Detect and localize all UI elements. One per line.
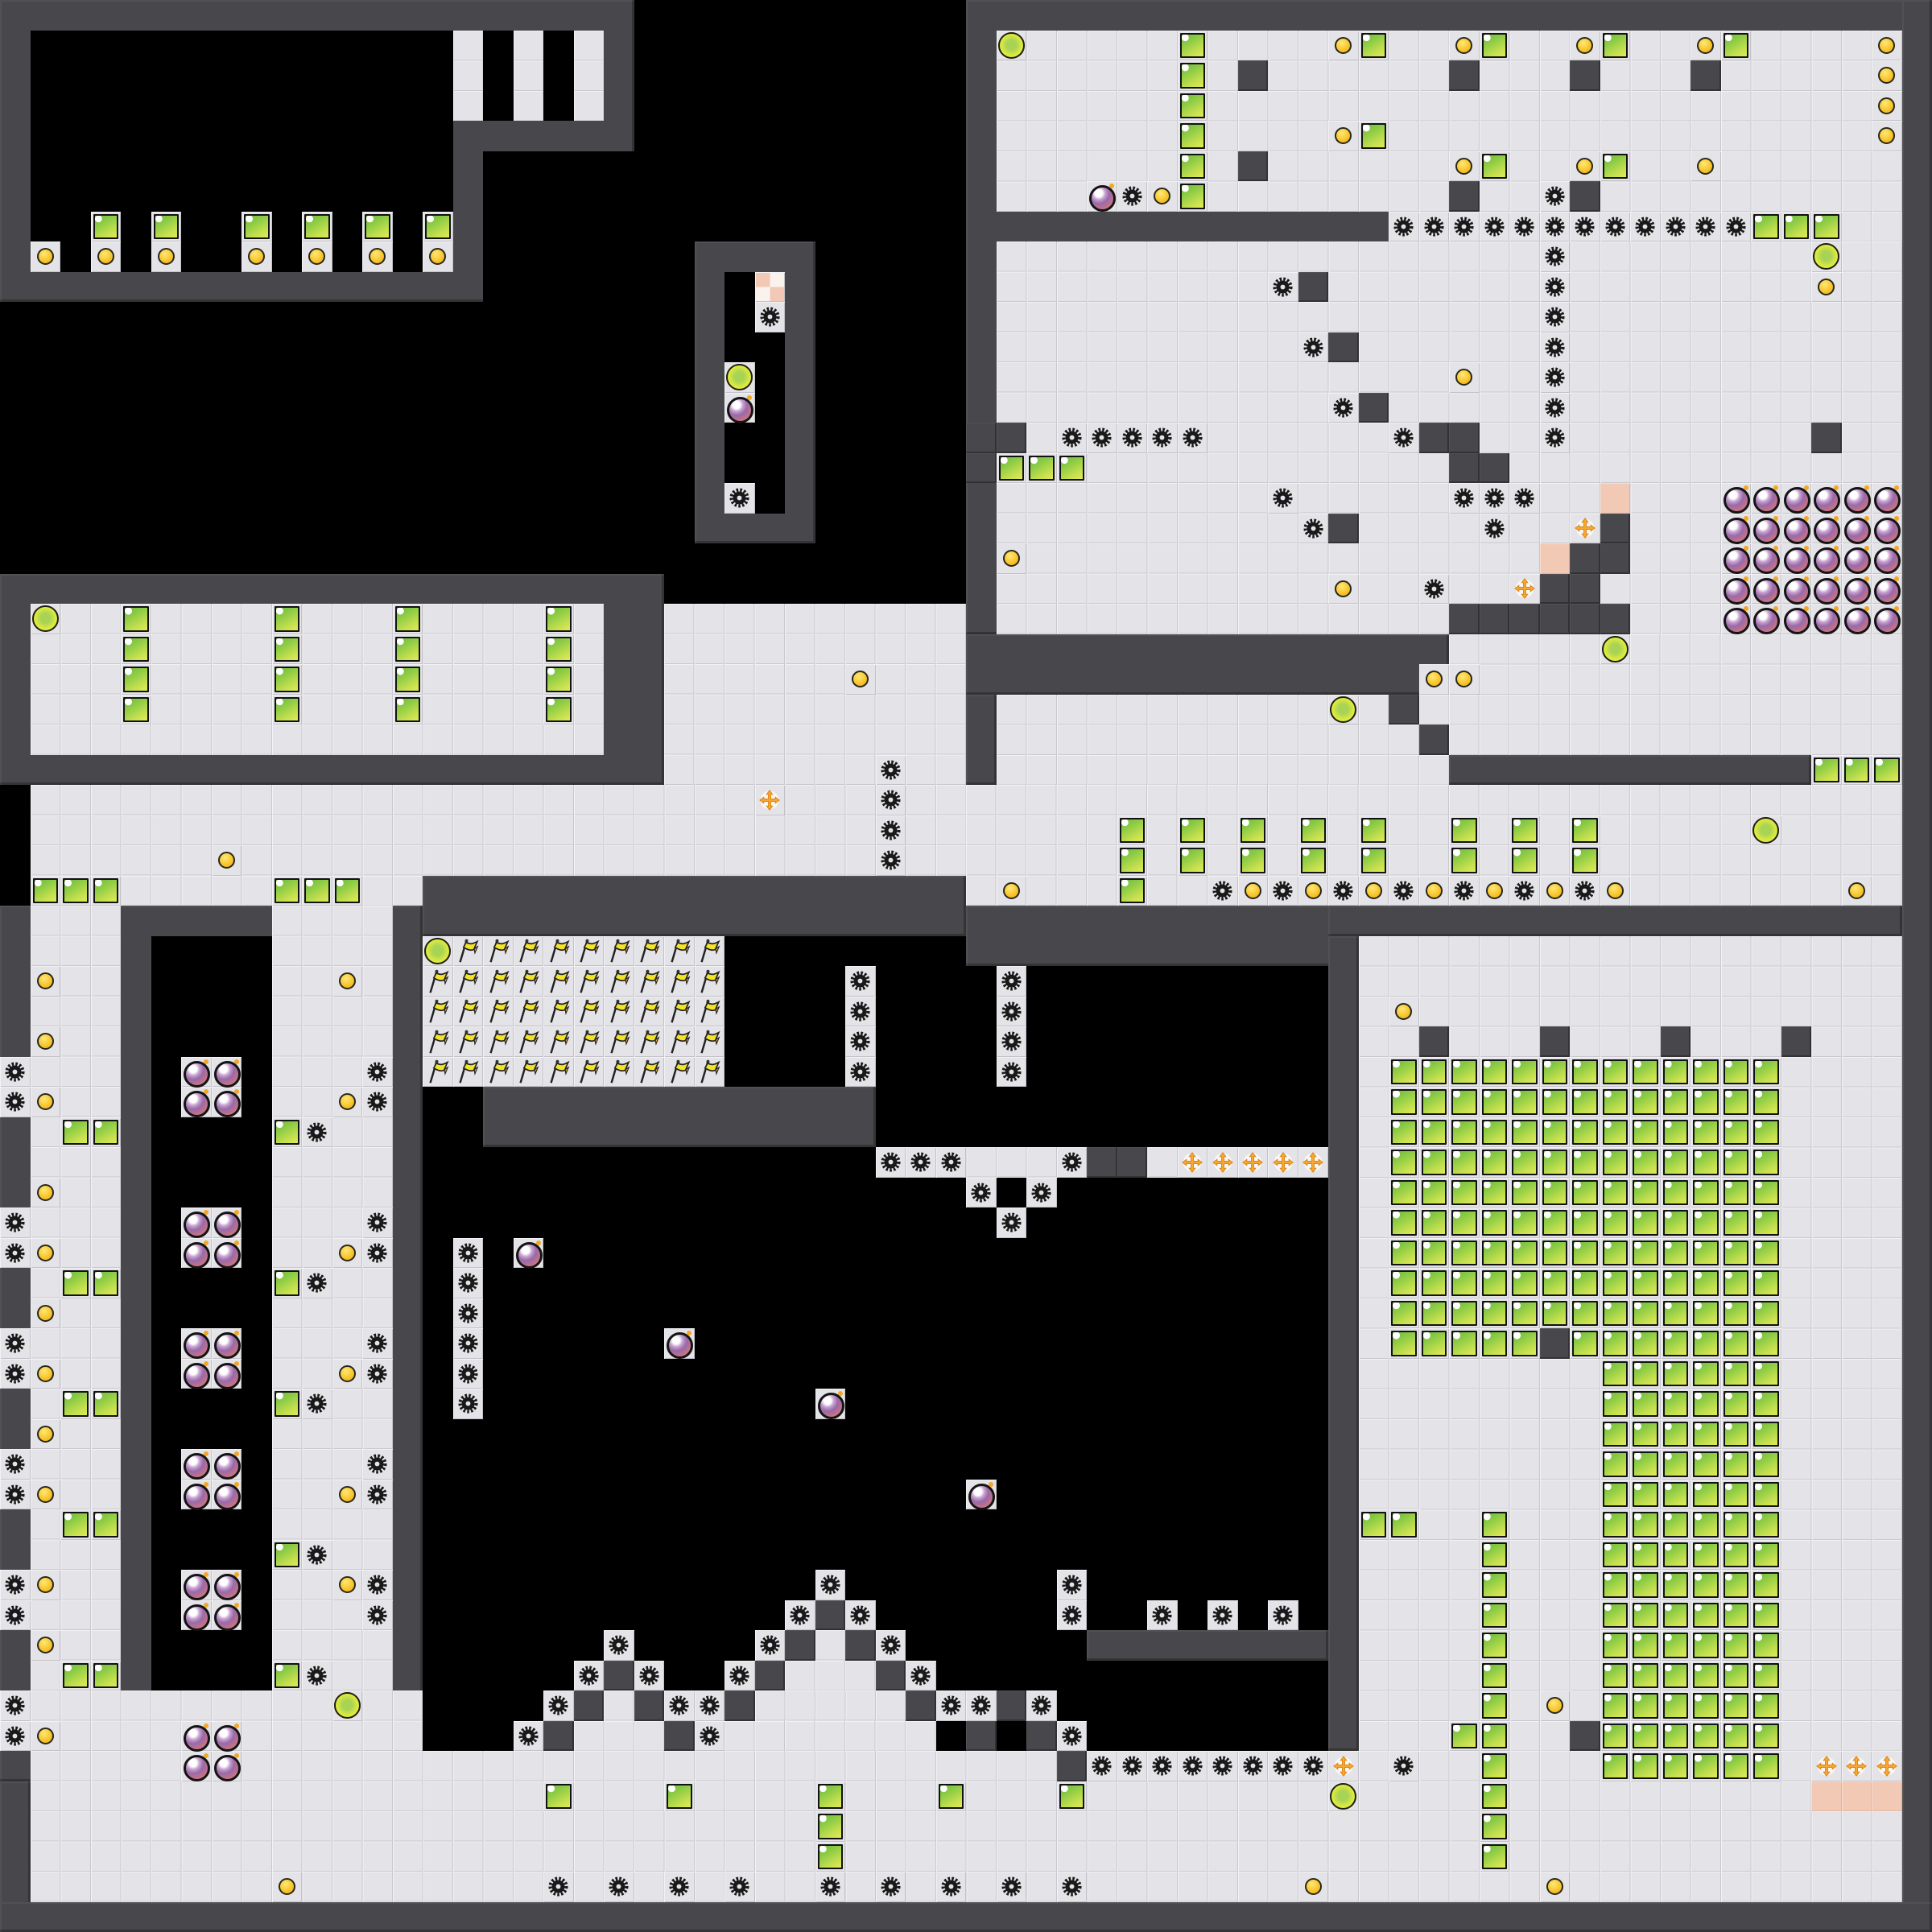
floor-tile [1480,1540,1510,1571]
green-gem-block [1482,1844,1508,1870]
green-gem-block [1603,1089,1629,1115]
green-gem-block [1451,1724,1477,1749]
green-gem-block [93,214,119,240]
floor-tile [1117,845,1148,876]
floor-tile [1449,1721,1480,1752]
floor-tile [1449,1207,1480,1238]
green-gem-block [1724,33,1749,59]
wall-block [1570,60,1600,91]
big-orb [724,362,755,393]
green-gem-block [1512,1210,1538,1236]
saw-blade-hazard [1633,214,1657,239]
floor-tile [1600,1057,1631,1088]
green-gem-block [1693,1512,1719,1538]
floor-tile [1661,1480,1691,1510]
floor-tile [1690,1751,1721,1781]
bomb [1751,514,1781,544]
bomb-fuse-icon [687,1331,691,1335]
green-gem-block [1663,1059,1689,1085]
move-cross-powerup [1241,1150,1265,1174]
floor-tile [1600,1600,1631,1631]
bomb [1842,543,1872,574]
green-gem-block [1844,758,1870,783]
floor-tile [1570,1117,1600,1148]
coin [997,543,1027,574]
green-gem-block [1603,1693,1629,1719]
saw-blade-hazard [1389,876,1419,906]
bomb-fuse-icon [1834,516,1839,521]
bomb-icon [968,1482,993,1507]
floor-tile [1751,1690,1781,1721]
saw-blade-hazard [1512,878,1537,903]
saw-blade-hazard [878,758,903,782]
floor-tile [1690,1630,1721,1661]
floor-tile [1751,1359,1781,1389]
floor-tile [1690,1268,1721,1298]
floor-tile [1661,1238,1691,1269]
saw-blade-hazard [999,1874,1024,1899]
coin-icon [37,1426,54,1443]
coin-icon [339,1486,356,1503]
flag-marker [453,1026,484,1057]
bomb [212,1721,242,1752]
floor-tile [242,212,272,242]
coin-icon [1818,279,1835,295]
coin-icon [37,1093,54,1110]
flag-marker [634,1026,665,1057]
floor-tile [1570,1057,1600,1088]
floor-tile [1570,1238,1600,1269]
saw-blade-hazard [845,966,876,997]
bomb [181,1328,212,1359]
saw-blade-hazard [815,1872,846,1902]
floor-tile [1419,1268,1450,1298]
bomb [181,1721,212,1752]
coin-icon [1697,158,1714,175]
saw-blade-hazard [453,1298,484,1329]
bomb [1781,543,1812,574]
floor-tile [1057,1781,1088,1812]
green-gem-block [1542,1120,1568,1146]
saw-blade-hazard [453,1238,484,1269]
saw-blade-hazard [1210,878,1235,903]
floor-tile [1178,91,1208,122]
coin [1449,664,1480,695]
big-orb [997,31,1027,61]
flag-marker [483,1057,514,1088]
floor-tile [1751,1238,1781,1269]
floor-tile [1600,1389,1631,1419]
floor-tile [1751,1540,1781,1571]
floor-area [574,31,605,122]
saw-blade-hazard [304,1542,329,1567]
saw-blade-hazard [1540,393,1571,423]
floor-tile [1661,1600,1691,1631]
wall-block [1661,1026,1691,1057]
bomb-icon [184,1724,208,1748]
green-gem-block [1753,1301,1779,1327]
floor-tile [1480,1842,1510,1872]
green-gem-block [93,1512,119,1538]
flag-marker [514,1058,542,1085]
green-gem-block [1451,848,1477,873]
saw-blade-hazard [1572,214,1597,239]
green-gem-block [1542,1150,1568,1175]
flag-marker [635,1058,663,1085]
flag-marker [545,968,572,995]
floor-tile [1117,876,1148,906]
green-gem-block [1451,1210,1477,1236]
bomb-icon [184,1482,208,1507]
wall-block [815,1600,846,1631]
green-gem-block [1693,1241,1719,1266]
big-orb [1811,242,1842,272]
bomb-fuse-icon [536,1241,541,1245]
green-gem-block [63,878,89,904]
flag-marker [485,968,512,995]
wall-block [755,1661,786,1691]
floor-tile [1690,1178,1721,1208]
saw-blade-hazard [0,1480,31,1510]
green-gem-block [1603,1270,1629,1296]
green-gem-block [1663,1361,1689,1387]
floor-tile [1751,1057,1781,1088]
flag-marker [604,936,634,967]
floor-tile [1630,1389,1661,1419]
void-area [31,31,393,272]
saw-blade-hazard [1542,304,1567,329]
green-gem-block [1482,1663,1508,1689]
bomb [1811,543,1842,574]
green-gem-block [1693,1180,1719,1206]
saw-blade-hazard [456,1301,481,1326]
floor-tile [1389,1298,1419,1329]
move-cross-powerup [1509,574,1540,605]
floor-tile [1389,1057,1419,1088]
green-gem-block [63,1391,89,1417]
floor-tile [815,1781,846,1812]
green-gem-block [818,1784,844,1810]
bomb-icon [1753,485,1778,510]
wall-block [1328,514,1359,544]
floor-tile [1600,1147,1631,1178]
floor-tile [1359,121,1389,151]
bomb-fuse-icon [1109,184,1114,188]
flag-marker [574,966,605,997]
saw-blade-hazard [1268,483,1298,514]
saw-blade-hazard [1270,878,1295,903]
saw-blade-hazard [1482,516,1507,541]
floor-tile [1661,1298,1691,1329]
wall-block [1570,574,1600,605]
green-gem-block [275,1542,300,1568]
floor-tile [272,1540,303,1571]
floor-tile [1721,1630,1752,1661]
saw-blade-hazard [968,1693,993,1718]
green-gem-block [1301,818,1327,844]
floor-tile [1480,1600,1510,1631]
wall-block [997,423,1027,453]
floor-tile [1661,1359,1691,1389]
saw-blade-hazard [936,1872,967,1902]
green-gem-block [1663,1753,1689,1779]
floor-tile [1419,1298,1450,1329]
floor-tile [393,695,423,725]
floor-tile [1449,1298,1480,1329]
floor-tile [1751,212,1781,242]
saw-blade-hazard [876,755,906,786]
bomb-icon [214,1753,239,1778]
coin [1690,31,1721,61]
bomb-icon [1874,485,1899,510]
green-gem-block [1482,33,1508,59]
green-gem-block [1663,1542,1689,1568]
bomb-fuse-icon [234,1451,239,1456]
saw-blade-hazard [1540,362,1571,393]
green-gem-block [1482,1089,1508,1115]
saw-blade-hazard [453,1328,484,1359]
green-gem-block [1663,1482,1689,1508]
floor-tile [1630,1238,1661,1269]
floor-tile [543,664,574,695]
green-gem-block [1603,1059,1629,1085]
saw-blade-hazard [604,1630,634,1661]
floor-tile [1389,1117,1419,1148]
floor-tile [1389,1207,1419,1238]
saw-blade-hazard [727,1663,752,1688]
green-gem-block [1603,1180,1629,1206]
floor-tile [1238,815,1269,846]
coin [1600,876,1631,906]
coin-icon [369,248,386,265]
green-gem-block [546,697,572,723]
saw-blade-hazard [1422,214,1447,239]
green-gem-block [1482,1241,1508,1266]
floor-tile [1509,1147,1540,1178]
saw-blade-hazard [1542,275,1567,299]
coin-icon [339,972,356,989]
flag-marker [664,966,695,997]
flag-marker [634,966,665,997]
floor-tile [1721,1570,1752,1600]
floor-tile [1600,31,1631,61]
floor-tile [1600,1449,1631,1480]
saw-blade-hazard [1661,212,1691,242]
level-map-canvas[interactable] [0,0,1932,1932]
move-cross-powerup [1844,1754,1868,1778]
floor-tile [1721,1389,1752,1419]
saw-blade-hazard [362,1087,393,1117]
floor-tile [1630,1480,1661,1510]
bomb-fuse-icon [204,1210,208,1215]
floor-tile [1359,31,1389,61]
floor-tile [543,695,574,725]
wall-block [604,1661,634,1691]
saw-blade-hazard [574,1661,605,1691]
floor-tile [1661,1540,1691,1571]
bomb-fuse-icon [1804,606,1809,611]
saw-blade-hazard [697,1724,722,1748]
saw-blade-hazard [1087,423,1117,453]
saw-blade-hazard [755,302,786,332]
floor-tile [1811,755,1842,786]
bomb-fuse-icon [1804,576,1809,581]
floor-tile [91,1509,122,1540]
saw-blade-hazard [1180,425,1205,450]
green-gem-block [1603,1633,1629,1658]
saw-blade-hazard [1057,1872,1088,1902]
bomb-icon [184,1361,208,1386]
floor-tile [1570,815,1600,846]
bomb [1751,543,1781,574]
flag-marker [423,997,453,1027]
green-gem-block [1724,1331,1749,1356]
green-gem-block [1663,1120,1689,1146]
saw-blade-hazard [999,968,1024,993]
green-gem-block [1633,1753,1658,1779]
saw-blade-hazard [456,1241,481,1265]
floor-tile [1661,1721,1691,1752]
coin-icon [1546,882,1563,899]
floor-tile [1419,1328,1450,1359]
wall-block [966,1721,997,1752]
floor-tile [1509,1238,1540,1269]
saw-blade-hazard [0,1449,31,1480]
floor-tile [1751,1630,1781,1661]
saw-blade-hazard [634,1661,665,1691]
wall-block [0,1902,1932,1932]
saw-blade-hazard [514,1721,544,1752]
saw-blade-hazard [906,1147,936,1178]
green-gem-block [1603,1301,1629,1327]
bomb-icon [1753,576,1778,601]
bomb-fuse-icon [204,1482,208,1487]
floor-tile [1630,1117,1661,1148]
green-gem-block [93,1270,119,1296]
green-gem-block [1391,1270,1417,1296]
bomb [815,1389,846,1419]
bomb-icon [214,1724,239,1748]
green-gem-block [1572,1241,1598,1266]
saw-blade-hazard [1238,1751,1269,1781]
green-gem-block [1663,1180,1689,1206]
saw-blade-hazard [1509,483,1540,514]
bomb-icon [1784,516,1809,541]
bomb [1781,483,1812,514]
coin [332,1359,363,1389]
coin-icon [1426,882,1443,899]
flag-marker [635,937,663,964]
green-gem-block [275,637,300,663]
bomb [212,1751,242,1781]
saw-blade-hazard [1241,1753,1265,1778]
wall-block [1419,724,1450,755]
floor-tile [1751,1207,1781,1238]
saw-blade-hazard [365,1089,390,1114]
green-gem-block [1451,1059,1477,1085]
green-gem-block [1120,818,1146,844]
floor-tile [1751,1480,1781,1510]
floor-tile [1630,1540,1661,1571]
flag-marker [423,966,453,997]
green-gem-block [33,878,59,904]
bomb-icon [1814,516,1839,541]
bomb [212,1087,242,1117]
bomb-fuse-icon [1864,576,1869,581]
green-gem-block [1753,1331,1779,1356]
saw-blade-hazard [1693,214,1718,239]
bomb [664,1328,695,1359]
green-gem-block [1451,1270,1477,1296]
coin-icon [279,1878,295,1895]
floor-tile [1389,1268,1419,1298]
wall-block [634,1690,665,1721]
flag-marker [696,937,723,964]
saw-blade-hazard [576,1663,601,1688]
saw-blade-hazard [997,1872,1027,1902]
flag-marker [574,1057,605,1088]
green-gem-block [1753,1361,1779,1387]
coin [362,242,393,272]
floor-tile [1630,1207,1661,1238]
green-gem-block [1663,1241,1689,1266]
saw-blade-hazard [362,1570,393,1600]
coin-icon [37,1365,54,1382]
green-gem-block [1693,1210,1719,1236]
move-cross-powerup [1298,1147,1329,1178]
floor-tile [1509,815,1540,846]
green-gem-block [1603,1482,1629,1508]
wall-block [876,1661,906,1691]
green-gem-block [1422,1270,1447,1296]
floor-tile [1480,1268,1510,1298]
bomb [181,1238,212,1269]
bomb-fuse-icon [1744,516,1748,521]
saw-blade-hazard [878,1150,903,1174]
green-gem-block [1542,1210,1568,1236]
green-gem-block [1572,848,1598,873]
green-gem-block [1633,1451,1658,1477]
floor-area [1449,634,1902,755]
green-gem-block [1603,1512,1629,1538]
saw-blade-hazard [999,1029,1024,1054]
bomb-fuse-icon [1744,576,1748,581]
green-gem-block [1633,1059,1658,1085]
green-gem-block [1391,1331,1417,1356]
floor-tile [1721,1328,1752,1359]
floor-tile [1630,1661,1661,1691]
bomb-icon [1844,485,1869,510]
flag-marker [543,936,574,967]
green-gem-block [1482,1603,1508,1629]
floor-tile [1690,1721,1721,1752]
green-gem-block [546,637,572,663]
floor-tile [121,634,151,665]
saw-blade-hazard [543,1872,574,1902]
green-gem-block [1693,1391,1719,1417]
saw-blade-hazard [2,1059,27,1084]
green-gem-block [1753,1482,1779,1508]
coin-icon [37,972,54,989]
bomb-fuse-icon [1773,485,1778,490]
floor-tile [1721,31,1752,61]
floor-tile [1419,1207,1450,1238]
bomb [1811,604,1842,634]
green-gem-block [818,1844,844,1870]
saw-blade-hazard [664,1872,695,1902]
bomb-icon [184,1331,208,1356]
bomb-icon [184,1603,208,1628]
